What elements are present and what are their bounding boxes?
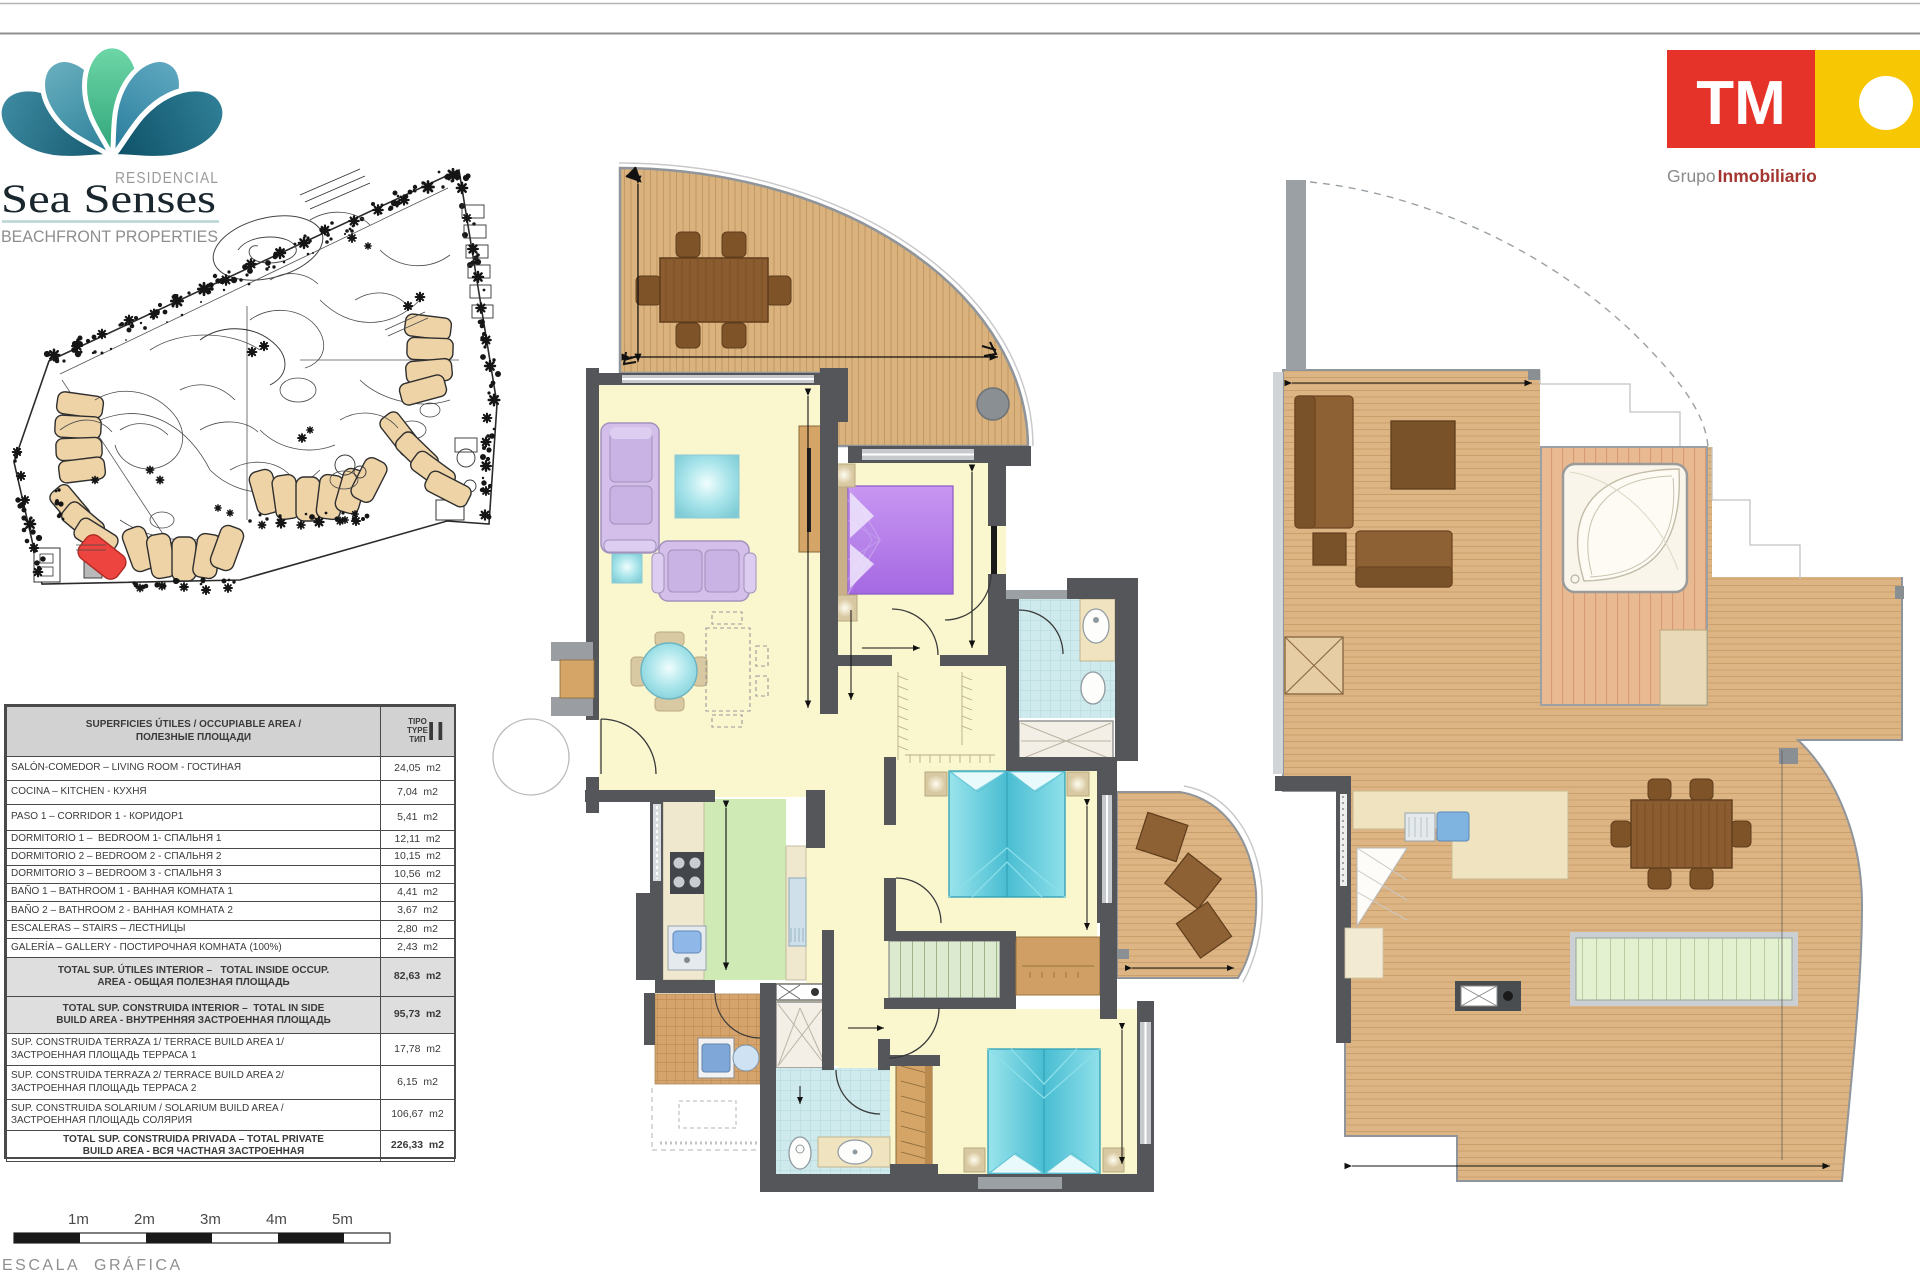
- svg-text:5m: 5m: [332, 1211, 353, 1228]
- svg-text:1m: 1m: [68, 1211, 89, 1228]
- svg-text:GrupoInmobiliario: GrupoInmobiliario: [1667, 166, 1817, 186]
- svg-text:BEACHFRONT PROPERTIES: BEACHFRONT PROPERTIES: [1, 228, 218, 246]
- svg-text:Sea Senses: Sea Senses: [1, 176, 216, 221]
- svg-text:3m: 3m: [200, 1211, 221, 1228]
- svg-text:2m: 2m: [134, 1211, 155, 1228]
- svg-text:4m: 4m: [266, 1211, 287, 1228]
- svg-text:TM: TM: [1696, 69, 1786, 138]
- svg-text:ESCALA GRÁFICA: ESCALA GRÁFICA: [2, 1255, 183, 1274]
